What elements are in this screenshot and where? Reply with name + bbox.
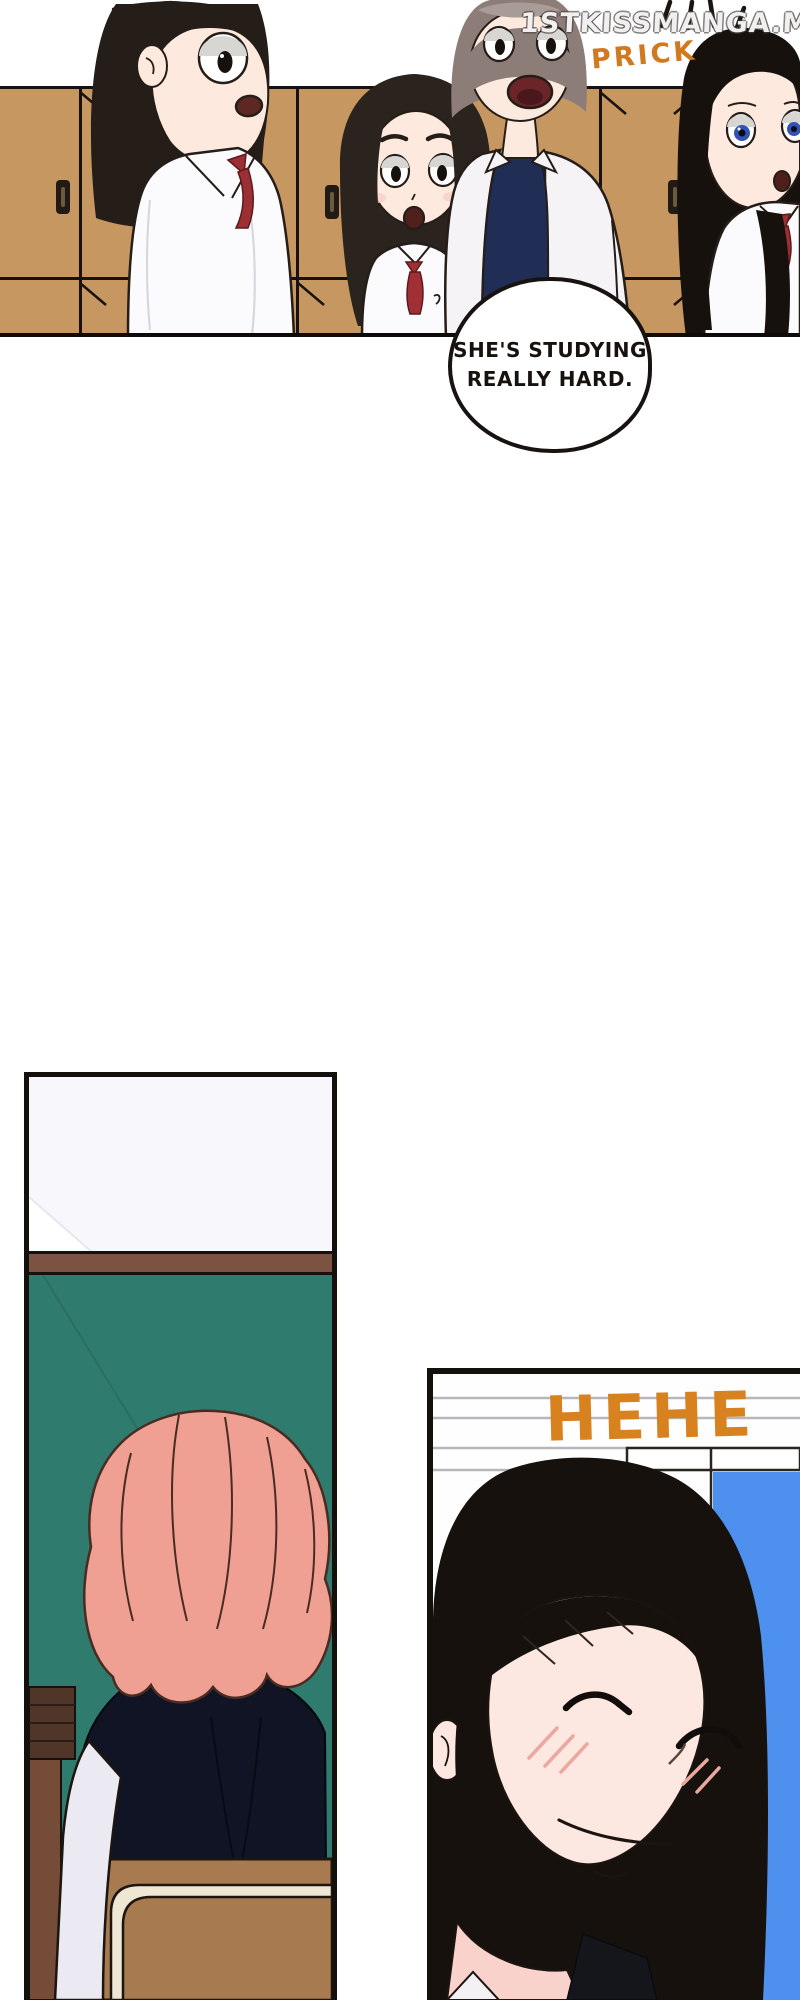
panel-border-bottom	[0, 333, 800, 337]
speech-line: SHE'S STUDYING	[453, 336, 647, 365]
speech-bubble: SHE'S STUDYING REALLY HARD.	[448, 277, 652, 453]
panel-chalkboard	[24, 1072, 337, 2000]
chalkboard-illustration	[29, 1077, 332, 2000]
smiling-girl	[433, 1458, 768, 2000]
sfx-hehe: HEHE	[544, 1377, 758, 1456]
speech-line: REALLY HARD.	[467, 365, 633, 394]
smile-illustration	[433, 1374, 800, 2000]
manga-page: 1STKISSMANGA.ME PRICK SHE'S STUDYING REA…	[0, 0, 800, 2000]
panel-smile: HEHE	[427, 1368, 800, 2000]
site-watermark: 1STKISSMANGA.ME	[519, 8, 800, 39]
chair	[85, 1859, 332, 2000]
